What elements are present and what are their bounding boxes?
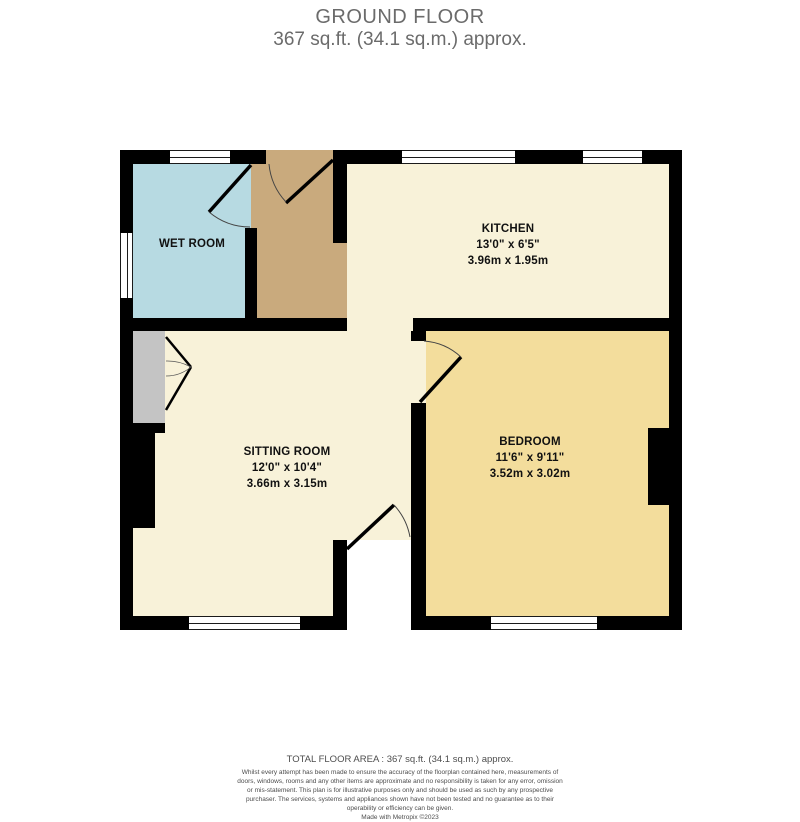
page-title: GROUND FLOOR [0,6,800,29]
wall-segment [669,150,682,630]
wall-segment [120,150,133,233]
window [170,150,230,164]
kitchen-sitting-opening [347,318,413,331]
room-name: KITCHEN [347,221,669,237]
entrance-recess [347,540,411,630]
window [402,150,515,164]
room-name: SITTING ROOM [157,444,417,460]
wall-segment [515,150,583,164]
wall-recess-left [333,540,347,630]
total-floor-area: TOTAL FLOOR AREA : 367 sq.ft. (34.1 sq.m… [0,753,800,766]
front-door-opening [266,150,333,164]
wall-hall-bottom [120,318,347,331]
wall-under-cupboard [133,423,165,433]
window [120,233,133,298]
wall-segment [230,150,266,164]
room-dims-imperial: 11'6" x 9'11" [410,450,650,466]
room-name: WET ROOM [133,236,251,252]
room-dims-metric: 3.66m x 3.15m [157,476,417,492]
window [583,150,642,164]
cupboard [133,330,165,423]
room-dims-imperial: 13'0" x 6'5" [347,237,669,253]
wall-segment [120,616,189,630]
room-label-kitchen: KITCHEN 13'0" x 6'5" 3.96m x 1.95m [347,221,669,269]
chimney-breast-left [133,433,155,528]
room-dims-metric: 3.52m x 3.02m [410,466,650,482]
room-label-sitting-room: SITTING ROOM 12'0" x 10'4" 3.66m x 3.15m [157,444,417,492]
credit-text: Made with Metropix ©2023 [0,813,800,822]
page-header: GROUND FLOOR 367 sq.ft. (34.1 sq.m.) app… [0,6,800,51]
room-label-bedroom: BEDROOM 11'6" x 9'11" 3.52m x 3.02m [410,434,650,482]
page-subtitle: 367 sq.ft. (34.1 sq.m.) approx. [0,29,800,51]
floor-plan: WET ROOM KITCHEN 13'0" x 6'5" 3.96m x 1.… [0,0,800,812]
wall-segment [411,616,491,630]
window [491,616,597,630]
wall-segment [120,298,133,630]
room-dims-metric: 3.96m x 1.95m [347,253,669,269]
disclaimer-text: Whilst every attempt has been made to en… [235,768,565,813]
room-label-wet-room: WET ROOM [133,236,251,252]
chimney-breast-right [648,428,669,505]
wall-bedroom-top [413,318,669,331]
wall-segment [597,616,682,630]
room-name: BEDROOM [410,434,650,450]
bedroom-door-opening [411,341,426,403]
room-dims-imperial: 12'0" x 10'4" [157,460,417,476]
wall-segment [333,150,402,164]
wall-hall-kitchen [333,164,347,243]
window [189,616,300,630]
